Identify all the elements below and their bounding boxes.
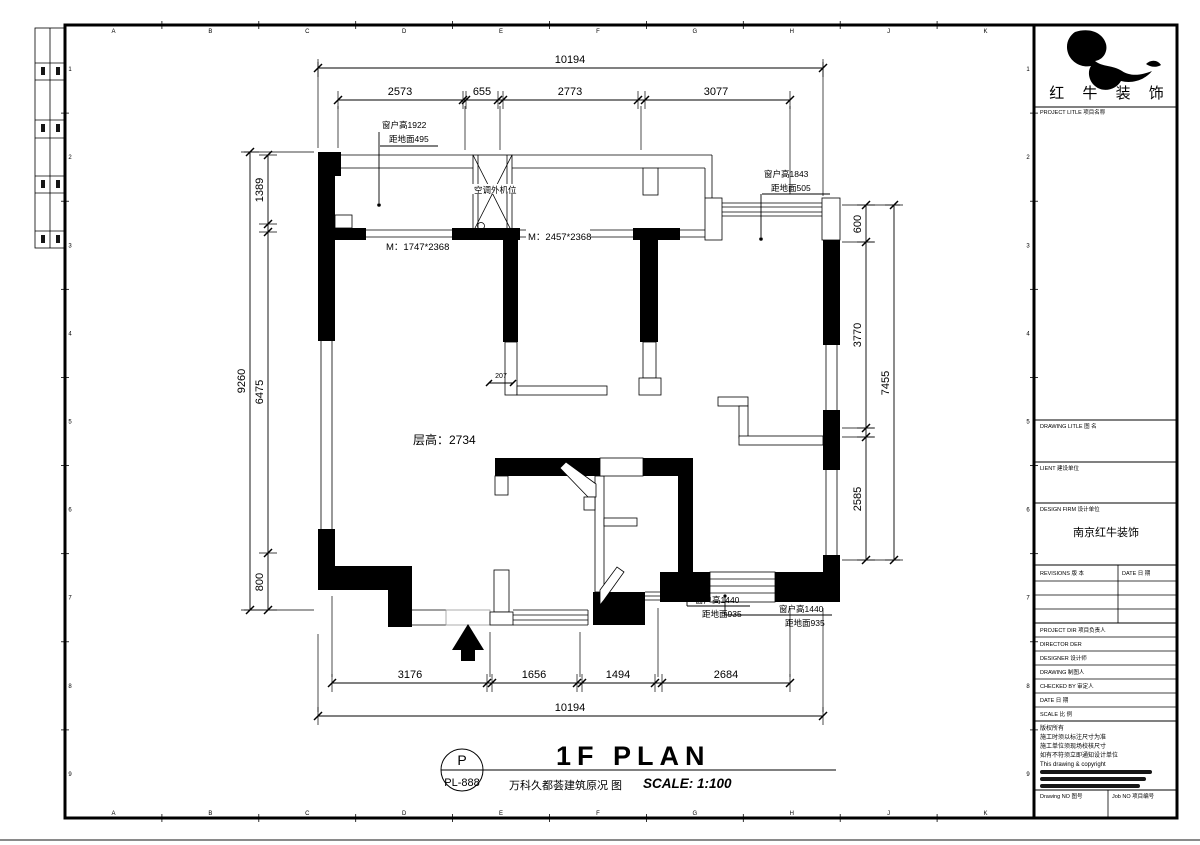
grid-ref-label: 6: [1026, 508, 1030, 514]
note-line-3: 如有不符须立即通知设计单位: [1040, 751, 1118, 759]
cad-canvas: AABBCCDDEEFFGGHHJJKK112233445566778899: [0, 0, 1200, 845]
grid-ref-label: 1: [1026, 67, 1030, 73]
grid-ref-label: K: [984, 29, 988, 35]
dim-bottom-seg-1: 1656: [522, 669, 546, 681]
sheet-frame: [0, 25, 1200, 840]
grid-ref-label: E: [499, 811, 503, 817]
drawing-no-label: Drawing NO 图号: [1040, 792, 1083, 800]
dim-right-seg-2: 2585: [852, 487, 864, 511]
grid-ref-label: K: [984, 811, 988, 817]
illegible-note-bar: [1040, 770, 1152, 774]
bottom-left-window: [513, 610, 588, 625]
project-title-label: PROJECT LITLE 项目名称: [1040, 108, 1106, 116]
note-line-0: 版权所有: [1040, 724, 1064, 732]
window-note-top-right-line1: 窗户高1843: [764, 169, 809, 179]
dim-right-seg-1: 3770: [852, 323, 864, 347]
grid-ref-label: C: [305, 811, 310, 817]
sheet-grid-references: AABBCCDDEEFFGGHHJJKK112233445566778899: [61, 21, 1038, 822]
checked-by-label: CHECKED BY 审定人: [1040, 682, 1094, 690]
grid-ref-label: A: [111, 29, 115, 35]
grid-ref-label: H: [790, 811, 794, 817]
grid-ref-label: D: [402, 29, 407, 35]
plan-annotations: 窗户高1922 距地面495 窗户高1843 距地面505 窗户高1440 距地…: [377, 120, 832, 628]
window-note-bottom-right-line1: 窗户高1440: [779, 604, 824, 614]
fold-strip-table: [35, 28, 65, 248]
window-note-top-left-line1: 窗户高1922: [382, 120, 427, 130]
title-block: 红 牛 装 饰 PROJECT LITLE 项目名称 DRAWING LITLE…: [1034, 30, 1177, 818]
grid-ref-label: A: [111, 811, 115, 817]
note-line-1: 施工时须以标注尺寸为准: [1040, 733, 1106, 741]
dim-top-seg-3: 3077: [704, 86, 728, 98]
grid-ref-label: J: [887, 811, 890, 817]
drawing-sheet: AABBCCDDEEFFGGHHJJKK112233445566778899: [0, 0, 1200, 845]
door-size-mid-label: M：2457*2368: [528, 232, 591, 243]
date-label: DATE 日 期: [1040, 697, 1069, 704]
grid-ref-label: 7: [1026, 596, 1030, 602]
dim-bottom-seg-0: 3176: [398, 669, 422, 681]
dim-left-seg-1: 6475: [254, 380, 266, 404]
grid-ref-label: 7: [68, 596, 72, 602]
grid-ref-label: 8: [68, 684, 72, 690]
dim-top-seg-1: 655: [473, 86, 491, 98]
dim-top-seg-2: 2773: [558, 86, 582, 98]
top-right-window: [705, 198, 840, 240]
grid-ref-label: E: [499, 29, 503, 35]
dim-bottom-seg-2: 1494: [606, 669, 630, 681]
grid-ref-label: G: [693, 29, 698, 35]
ceiling-height-label: 层高：2734: [413, 432, 476, 447]
window-note-top-left-line2: 距地面495: [389, 134, 429, 144]
duct-notch: [643, 168, 658, 195]
design-firm-label: DESIGN FIRM 设计单位: [1040, 505, 1100, 513]
designer-label: DESIGNER 设计师: [1040, 654, 1087, 662]
grid-ref-label: 8: [1026, 684, 1030, 690]
job-no-label: Job NO 项目编号: [1112, 792, 1155, 800]
plan-subtitle: 万科久都荟建筑原况 图: [509, 778, 622, 792]
client-label: LIENT 建设单位: [1040, 464, 1080, 472]
grid-ref-label: 1: [68, 67, 72, 73]
grid-ref-label: B: [208, 29, 212, 35]
redniu-logo-icon: [1067, 30, 1152, 90]
design-firm-value: 南京红牛装饰: [1073, 525, 1139, 539]
redniu-logo-tail-icon: [1146, 61, 1161, 67]
ac-unit-label: 空调外机位: [474, 185, 517, 195]
entry-arrow: [452, 624, 484, 661]
grid-ref-label: F: [596, 29, 600, 35]
illegible-note-bar: [1040, 777, 1146, 781]
drawing-label: DRAWING 制图人: [1040, 668, 1085, 676]
scale-label: SCALE 比 例: [1040, 710, 1073, 718]
note-line-4: This drawing & copyright: [1040, 762, 1106, 768]
grid-ref-label: H: [790, 29, 794, 35]
dim-top-overall: 10194: [555, 54, 586, 66]
note-line-2: 施工单位须现场校核尺寸: [1040, 742, 1106, 750]
illegible-note-bar: [1040, 784, 1140, 788]
dim-207-label: 207: [495, 373, 507, 380]
grid-ref-label: 9: [1026, 772, 1030, 778]
window-note-top-right-line2: 距地面505: [771, 183, 811, 193]
grid-ref-label: F: [596, 811, 600, 817]
wall-notch: [335, 215, 352, 228]
grid-ref-label: C: [305, 29, 310, 35]
bubble-code: PL-888: [444, 777, 479, 789]
bubble-letter: P: [457, 752, 466, 768]
dim-left-seg-2: 800: [254, 573, 266, 591]
dim-bottom-overall: 10194: [555, 702, 586, 714]
plan-title: 1F PLAN: [556, 741, 711, 771]
grid-ref-label: J: [887, 29, 890, 35]
grid-ref-label: 2: [68, 155, 72, 161]
dim-left-overall: 9260: [236, 369, 248, 393]
dim-left-seg-0: 1389: [254, 178, 266, 202]
plan-scale: SCALE: 1:100: [643, 776, 732, 791]
dim-right-overall: 7455: [880, 371, 892, 395]
t-column: [494, 570, 509, 612]
grid-ref-label: 4: [68, 331, 72, 337]
grid-ref-label: B: [208, 811, 212, 817]
grid-ref-label: 2: [1026, 155, 1030, 161]
window-note-bottom-mid-line2: 距地面935: [702, 609, 742, 619]
dim-bottom-seg-3: 2684: [714, 669, 738, 681]
date-column-label: DATE 日 期: [1122, 570, 1151, 577]
grid-ref-label: 3: [68, 243, 72, 249]
entry-door-opening: [446, 610, 490, 625]
project-dir-label: PROJECT DIR 项目负责人: [1040, 626, 1106, 634]
window-note-bottom-mid-line1: 窗户高1440: [695, 595, 740, 605]
revisions-label: REVISIONS 版 本: [1040, 569, 1085, 577]
grid-ref-label: 6: [68, 508, 72, 514]
fold-strip-tiny-marks: [41, 67, 60, 243]
company-name: 红 牛 装 饰: [1049, 85, 1171, 102]
drawing-title-label: DRAWING LITLE 图 名: [1040, 422, 1097, 430]
sheet-title-area: P PL-888 1F PLAN 万科久都荟建筑原况 图 SCALE: 1:10…: [441, 741, 836, 792]
director-label: DIRECTOR DER: [1040, 642, 1082, 648]
door-size-left-label: M：1747*2368: [386, 242, 449, 253]
window-note-bottom-right-line2: 距地面935: [785, 618, 825, 628]
grid-ref-label: 3: [1026, 243, 1030, 249]
grid-ref-label: 9: [68, 772, 72, 778]
grid-ref-label: G: [693, 811, 698, 817]
grid-ref-label: D: [402, 811, 407, 817]
dim-top-seg-0: 2573: [388, 86, 412, 98]
grid-ref-label: 5: [1026, 420, 1030, 426]
grid-ref-label: 4: [1026, 331, 1030, 337]
dim-right-seg-0: 600: [852, 215, 864, 233]
grid-ref-label: 5: [68, 420, 72, 426]
